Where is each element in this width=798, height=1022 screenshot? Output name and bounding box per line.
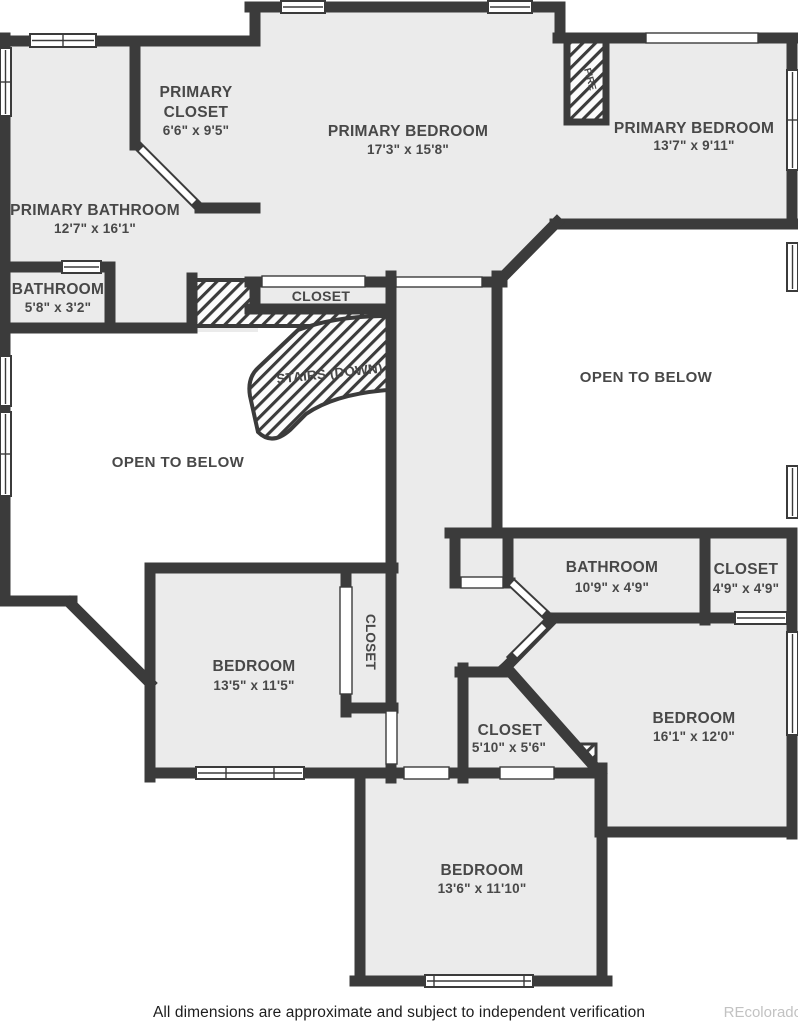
window (0, 412, 11, 496)
dims-primary-bathroom: 12'7" x 16'1" (54, 221, 136, 236)
label-bathroom-mid: BATHROOM (566, 559, 659, 576)
dims-primary-bedroom-a: 17'3" x 15'8" (367, 142, 449, 157)
label-primary-bathroom: PRIMARY BATHROOM (10, 202, 180, 219)
dims-closet-mid: 4'9" x 4'9" (713, 581, 779, 596)
label-primary-closet-2: CLOSET (164, 104, 229, 121)
dims-bathroom-mid: 10'9" x 4'9" (575, 580, 649, 595)
window (787, 243, 798, 291)
closet-opening (262, 276, 365, 287)
floorplan-page: PRIMARY CLOSET 6'6" x 9'5" PRIMARY BEDRO… (0, 0, 798, 1022)
window (30, 34, 96, 47)
label-open-to-below-right: OPEN TO BELOW (580, 369, 713, 386)
label-bedroom-bottom: BEDROOM (440, 862, 523, 879)
label-closet-lower: CLOSET (478, 722, 543, 739)
window (196, 767, 304, 779)
window (488, 1, 532, 13)
window (787, 70, 798, 170)
label-bedroom-left: BEDROOM (212, 658, 295, 675)
doorway-closet-left (340, 587, 352, 694)
dims-bedroom-right: 16'1" x 12'0" (653, 729, 735, 744)
label-closet-vertical: CLOSET (363, 614, 378, 671)
dims-closet-lower: 5'10" x 5'6" (472, 740, 546, 755)
dims-primary-closet: 6'6" x 9'5" (163, 123, 229, 138)
opening-closet-bottom (500, 767, 554, 779)
dims-bedroom-left: 13'5" x 11'5" (213, 678, 294, 693)
label-bathroom-small: BATHROOM (12, 281, 105, 298)
label-open-to-below-left: OPEN TO BELOW (112, 454, 245, 471)
label-primary-bedroom-a: PRIMARY BEDROOM (328, 123, 488, 140)
label-bedroom-right: BEDROOM (652, 710, 735, 727)
window (0, 356, 11, 406)
window (62, 261, 101, 273)
window (0, 48, 11, 116)
label-primary-closet: PRIMARY (159, 84, 232, 101)
floorplan-svg: PRIMARY CLOSET 6'6" x 9'5" PRIMARY BEDRO… (0, 0, 798, 1022)
disclaimer-text: All dimensions are approximate and subje… (153, 1004, 645, 1021)
doorway-bedroom-left (386, 711, 397, 764)
window (787, 632, 798, 735)
window (281, 1, 325, 13)
label-closet-top: CLOSET (292, 288, 351, 304)
window (425, 975, 533, 987)
label-closet-mid: CLOSET (714, 561, 779, 578)
window (787, 466, 798, 518)
footer: All dimensions are approximate and subje… (153, 1004, 798, 1021)
dims-bathroom-small: 5'8" x 3'2" (25, 300, 91, 315)
window (646, 33, 758, 43)
label-primary-bedroom-b: PRIMARY BEDROOM (614, 120, 774, 137)
window (735, 612, 787, 624)
dims-primary-bedroom-b: 13'7" x 9'11" (653, 138, 734, 153)
dims-bedroom-bottom: 13'6" x 11'10" (438, 881, 527, 896)
doorway-landing (461, 577, 503, 588)
watermark-text: REcolorado (724, 1004, 798, 1021)
doorway-primary-bedroom (396, 277, 482, 287)
opening-hall-bottom (404, 767, 449, 779)
